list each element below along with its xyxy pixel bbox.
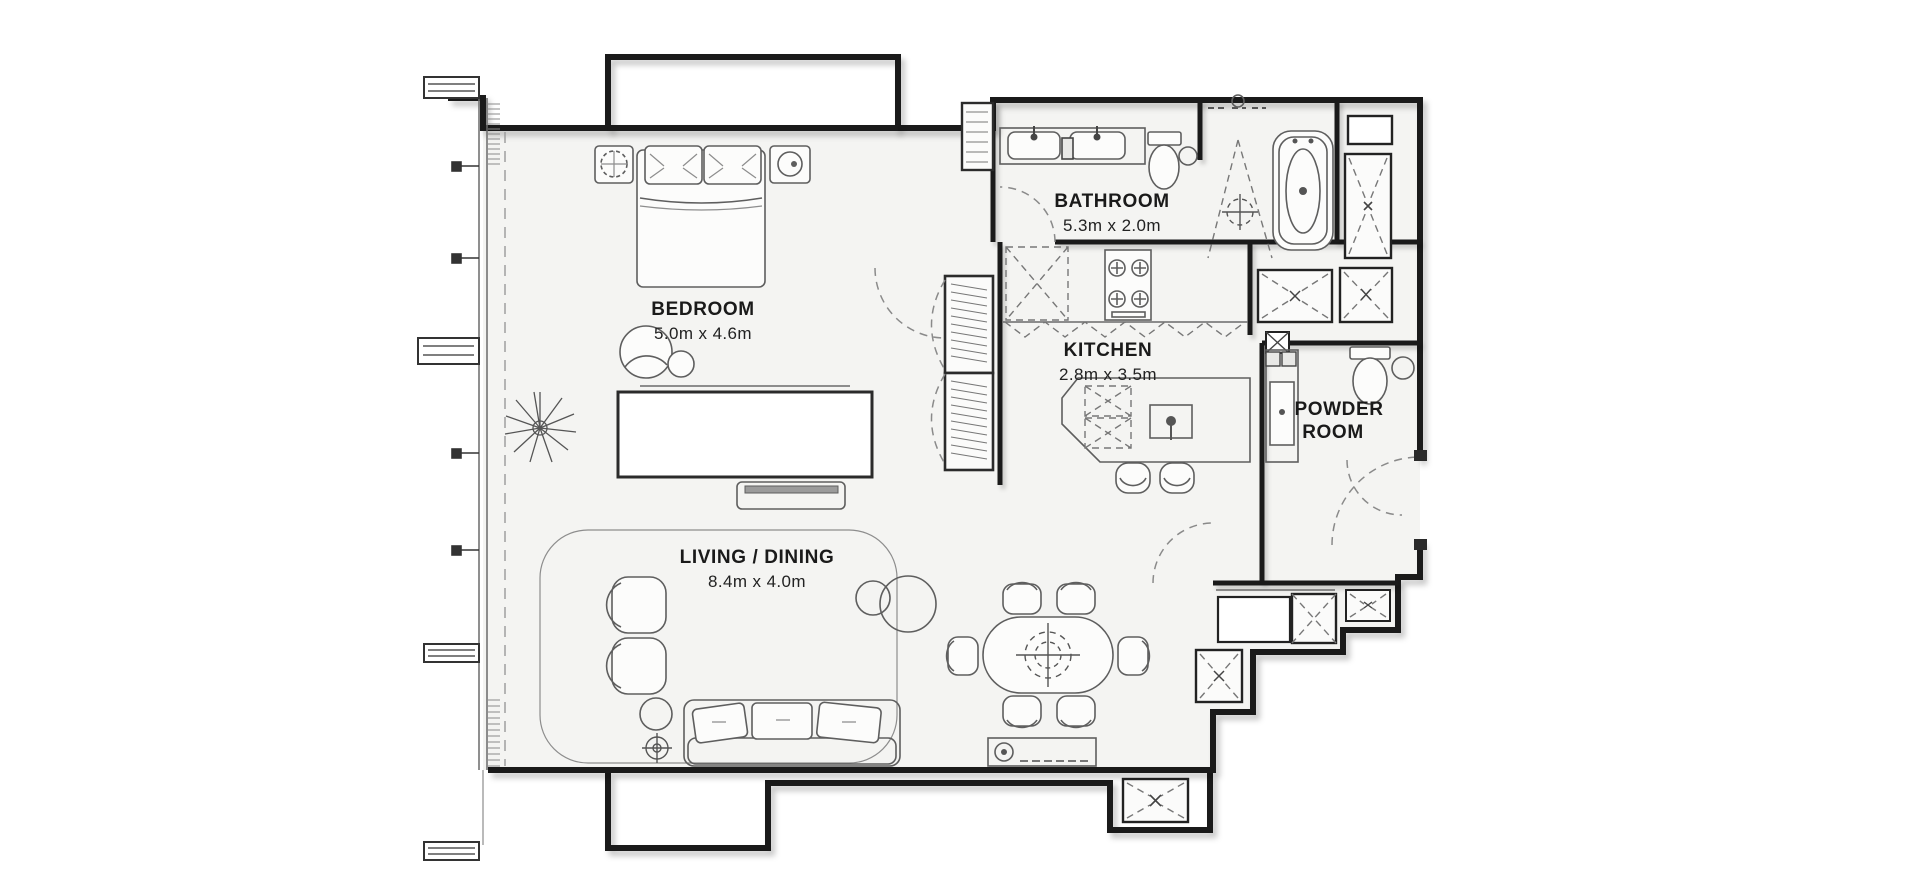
nightstand-left [595,146,633,183]
door-jamb [1414,539,1427,550]
dining-chair [1057,583,1095,614]
fin-top [424,77,479,98]
floor-plan-drawing: BEDROOM 5.0m x 4.6m BATHROOM 5.3m x 2.0m… [0,0,1920,891]
fin-bottom [424,842,479,860]
shoe-cabinet [962,103,993,170]
floor-plan-page: BEDROOM 5.0m x 4.6m BATHROOM 5.3m x 2.0m… [0,0,1920,891]
dining-chair [1003,583,1041,614]
bed [637,146,765,287]
corner-ac-box [1196,650,1242,702]
builtin-wardrobe-block [618,392,872,477]
shaft-box-2 [1340,268,1392,322]
powder-room-label-2: ROOM [1302,422,1364,443]
entry-closet [1218,597,1290,642]
armchair-2 [607,638,666,694]
fin-lower [424,644,479,662]
dining-chair [1118,637,1149,675]
dining-chair [1057,696,1095,727]
kitchen-dims: 2.8m x 3.5m [1059,365,1157,384]
dining-chair [1003,696,1041,727]
bedroom-dims: 5.0m x 4.6m [654,324,752,343]
service-box [1348,116,1392,144]
entry-vent-box [1346,590,1390,621]
stove [1105,250,1151,320]
top-bumpout [608,57,898,128]
bathroom-dims: 5.3m x 2.0m [1063,216,1161,235]
bottom-shaft-box [1123,779,1188,822]
living-dining-label: LIVING / DINING [680,547,835,568]
armchair-1 [607,577,666,633]
facade-fins [418,77,479,860]
living-dining-dims: 8.4m x 4.0m [708,572,806,591]
nightstand-right [770,146,810,183]
shaft-box-1 [1258,270,1332,322]
entry-shaft-box [1292,594,1336,643]
bottom-exterior-ledge [608,773,1210,848]
door-jamb [1414,450,1427,461]
powder-room-label-1: POWDER [1294,399,1383,420]
kitchen-label: KITCHEN [1064,340,1153,361]
bathtub [1273,131,1333,250]
fin-middle [418,338,479,364]
duct-shaft-tall [1345,154,1391,258]
bathroom-label: BATHROOM [1054,191,1169,212]
dining-chair [947,637,978,675]
bedroom-label: BEDROOM [651,299,754,320]
